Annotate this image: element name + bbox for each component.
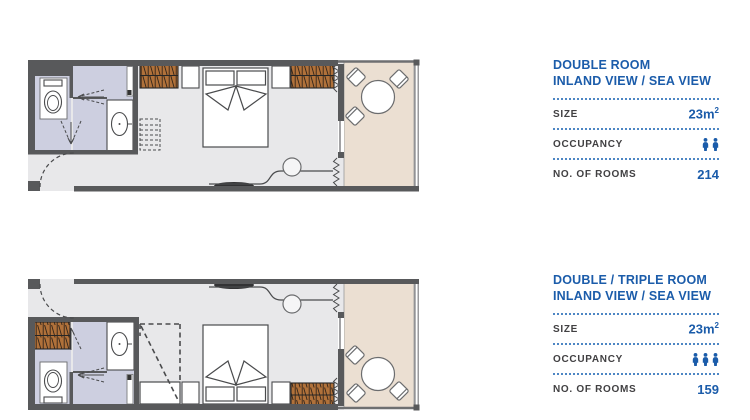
room-title: DOUBLE / TRIPLE ROOM INLAND VIEW / SEA V… — [553, 272, 719, 304]
rooms-label: NO. OF ROOMS — [553, 384, 636, 395]
nightstand — [182, 66, 199, 88]
rooms-value: 214 — [697, 167, 719, 182]
room-title-line2: INLAND VIEW / SEA VIEW — [553, 288, 719, 304]
person-icon — [702, 353, 709, 366]
person-icon — [702, 138, 709, 151]
double-triple-room-floor-plan — [28, 279, 420, 411]
rooms-row: NO. OF ROOMS 214 — [553, 158, 719, 188]
occupancy-label: OCCUPANCY — [553, 139, 623, 150]
person-icon — [712, 353, 719, 366]
toilet — [40, 78, 67, 119]
room-title: DOUBLE ROOM INLAND VIEW / SEA VIEW — [553, 57, 719, 89]
rooms-row: NO. OF ROOMS 159 — [553, 373, 719, 403]
room-title-line1: DOUBLE / TRIPLE ROOM — [553, 272, 719, 288]
double-bed — [203, 325, 268, 404]
room-info-panel-double: DOUBLE ROOM INLAND VIEW / SEA VIEW SIZE … — [553, 57, 719, 188]
size-value: 23m2 — [689, 106, 719, 121]
balcony-table — [362, 358, 395, 391]
size-row: SIZE 23m2 — [553, 313, 719, 343]
balcony-door — [338, 64, 344, 158]
size-label: SIZE — [553, 109, 578, 120]
nightstand — [272, 66, 290, 88]
room-info-panel-double-triple: DOUBLE / TRIPLE ROOM INLAND VIEW / SEA V… — [553, 272, 719, 403]
bathroom — [35, 66, 133, 151]
rooms-value: 159 — [697, 382, 719, 397]
occupancy-person-icons — [699, 138, 719, 151]
size-label: SIZE — [553, 324, 578, 335]
occupancy-person-icons — [689, 353, 719, 366]
size-value: 23m2 — [689, 321, 719, 336]
desk-chair — [283, 295, 301, 313]
double-bed — [203, 68, 268, 147]
nightstand — [272, 382, 290, 404]
balcony-door — [338, 312, 344, 406]
occupancy-row: OCCUPANCY — [553, 128, 719, 158]
double-room-floor-plan — [28, 60, 420, 192]
desk-chair — [283, 158, 301, 176]
occupancy-row: OCCUPANCY — [553, 343, 719, 373]
occupancy-label: OCCUPANCY — [553, 354, 623, 365]
floor-plans — [0, 0, 460, 420]
toilet — [40, 362, 67, 403]
room-title-line2: INLAND VIEW / SEA VIEW — [553, 73, 719, 89]
rooms-label: NO. OF ROOMS — [553, 169, 636, 180]
person-icon — [712, 138, 719, 151]
nightstand — [182, 382, 199, 404]
room-title-line1: DOUBLE ROOM — [553, 57, 719, 73]
person-icon — [692, 353, 699, 366]
balcony-table — [362, 81, 395, 114]
size-row: SIZE 23m2 — [553, 98, 719, 128]
